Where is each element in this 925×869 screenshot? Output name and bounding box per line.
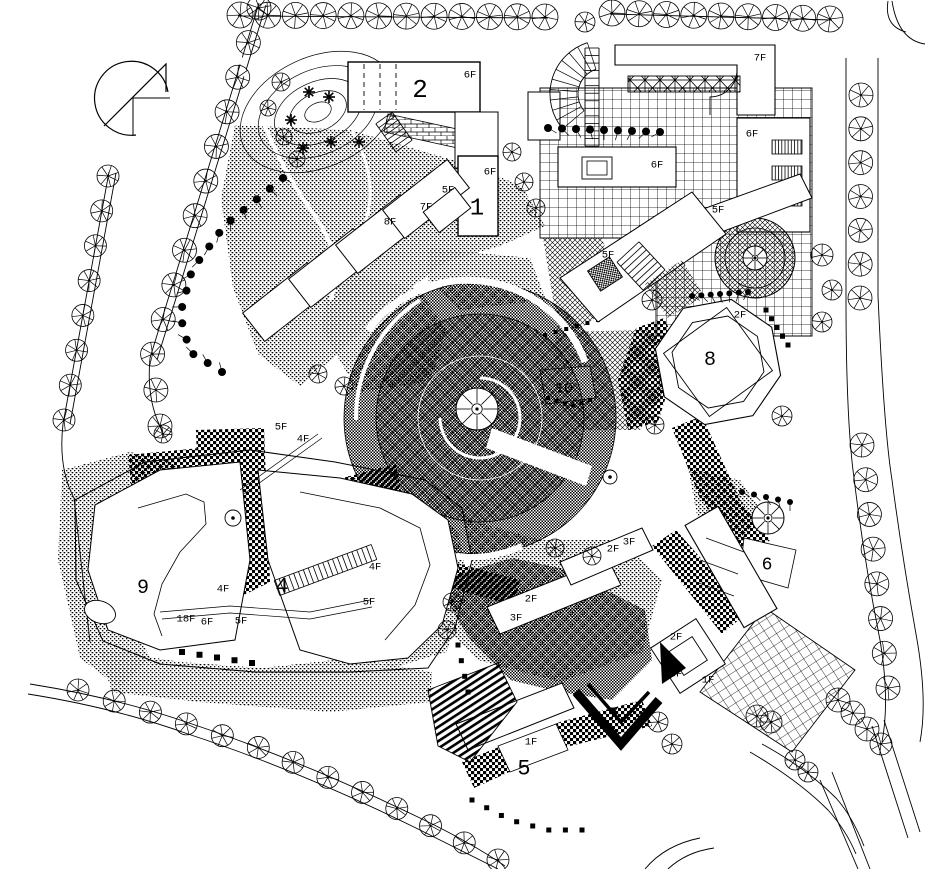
court [587,161,607,175]
plot-number-10: 10 [555,380,573,397]
round-plaza-center [743,246,767,270]
north-arrow-pointer [104,64,166,126]
floor-label: 6F [464,70,477,82]
plot-number-1: 1 [470,195,484,222]
canopy-xband [628,76,740,92]
plot-number-9: 9 [137,577,149,600]
floor-label: 4F [369,562,382,574]
tree [812,312,832,332]
star [285,114,297,126]
north-arrow-notch [133,98,170,135]
floor-label: 3F [623,537,636,549]
tree [855,717,879,741]
tree [798,762,818,782]
floor-label: 2F [607,544,620,556]
floor-label: 5F [712,205,725,217]
car-row [470,798,585,833]
road [892,1,925,44]
plaza-center-feature [456,388,498,430]
tree [575,12,595,32]
site-plan-drawing: 12456789106F7F6F6F6F5F7F5F8F5F2F5F4F3F2F… [0,0,925,869]
road [887,1,906,32]
floor-label: 3F [510,613,523,625]
floor-label: 6F [651,160,664,172]
tree [811,244,833,266]
tree [841,701,865,725]
floor-label: 5F [275,422,288,434]
road [846,58,886,742]
floor-label: 7F [754,53,767,65]
floor-label: 1F [702,675,715,687]
floor-label: 6F [201,617,214,629]
floor-label: 5F [602,250,615,262]
floor-label: 2F [734,310,747,322]
floor-label: 18F [177,614,196,626]
street-trees [848,83,873,310]
floor-label: 5F [235,616,248,628]
floor-label: 3F [670,669,683,681]
floor-label: 7F [420,202,433,214]
floor-label: 2F [525,594,538,606]
tree [648,712,668,732]
floor-label: 1F [525,737,538,749]
cad-viewport: 12456789106F7F6F6F6F5F7F5F8F5F2F5F4F3F2F… [0,0,925,869]
tree [785,750,805,770]
plot-number-8: 8 [704,349,716,372]
plot-number-5: 5 [517,757,530,782]
star [297,142,309,154]
floor-label: 5F [363,597,376,609]
road [668,848,714,869]
floor-label: 6F [484,167,497,179]
floor-label: 4F [297,434,310,446]
star [353,136,365,148]
tree [662,734,682,754]
road [70,173,116,424]
plot-number-7: 7 [608,705,619,725]
tree [272,73,290,91]
plot-number-2: 2 [412,75,428,105]
star [325,136,337,148]
plot-number-6: 6 [762,555,773,575]
path-node [225,510,241,526]
floor-label: 4F [217,584,230,596]
street-trees [850,433,900,700]
floor-label: 2F [670,632,683,644]
window-strip [772,140,802,154]
tree [503,143,521,161]
plot-number-4: 4 [275,575,288,600]
star [303,86,315,98]
star [323,91,335,103]
path-node [603,470,617,484]
road [762,744,864,846]
floor-label: 8F [384,217,397,229]
floor-label: 6F [746,129,759,141]
tree [870,733,892,755]
road [28,694,498,869]
fountain [752,502,784,534]
tree [822,280,842,300]
tree [772,406,792,426]
drawing-layers [28,0,925,869]
street-trees [599,0,843,32]
tree [515,173,533,191]
floor-label: 5F [442,185,455,197]
